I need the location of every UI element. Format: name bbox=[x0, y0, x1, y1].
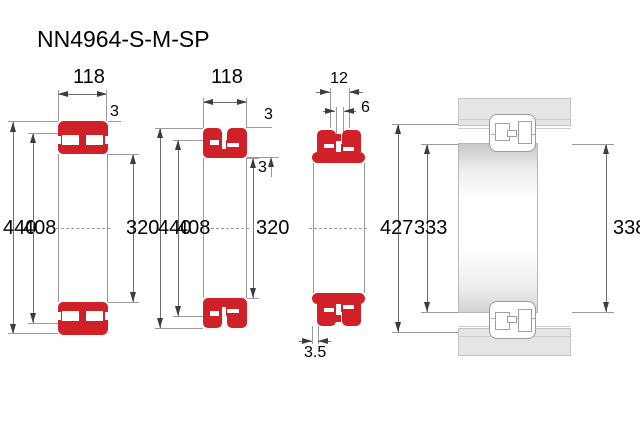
bearing-section-bottom bbox=[58, 302, 108, 335]
arrowhead bbox=[603, 144, 609, 154]
dim-label-width: 118 bbox=[209, 67, 245, 87]
bearing-section-bottom bbox=[203, 298, 247, 328]
extension-line bbox=[8, 121, 58, 122]
dim-label-width: 118 bbox=[71, 67, 107, 87]
dim-label-bore: 320 bbox=[126, 218, 159, 238]
outer-ring-lip bbox=[227, 316, 247, 328]
arrowhead bbox=[175, 140, 181, 150]
cage-slot bbox=[105, 312, 108, 320]
cage-bar bbox=[507, 316, 517, 323]
outer-ring bbox=[58, 121, 108, 133]
roller-cartridge-top bbox=[489, 114, 536, 152]
arrowhead bbox=[320, 89, 330, 95]
extension-line bbox=[155, 328, 203, 329]
extension-line bbox=[572, 144, 614, 145]
extension-line bbox=[312, 326, 313, 344]
roller bbox=[324, 144, 334, 148]
inner-ring bbox=[203, 298, 247, 307]
extension-line bbox=[58, 90, 59, 121]
roller bbox=[62, 135, 79, 145]
dim-label-bore: 320 bbox=[256, 218, 289, 238]
outer-ring-lip bbox=[203, 316, 222, 328]
inner-ring bbox=[203, 149, 247, 158]
arrowhead bbox=[30, 313, 36, 323]
inner-ring bbox=[312, 152, 365, 163]
extension-line bbox=[28, 323, 58, 324]
inner-ring-body bbox=[458, 143, 538, 313]
dim-line-bore bbox=[253, 158, 254, 298]
outer-ring-lip bbox=[203, 128, 222, 140]
arrowhead bbox=[325, 108, 335, 114]
inner-ring bbox=[58, 146, 108, 154]
outer-ring-lip bbox=[342, 312, 361, 326]
dim-label-id: 338 bbox=[613, 218, 640, 238]
dim-label-recess: 408 bbox=[177, 218, 210, 238]
roller bbox=[343, 147, 354, 151]
roller bbox=[210, 140, 219, 145]
bearing-section-top bbox=[58, 121, 108, 154]
outer-ring bbox=[58, 323, 108, 335]
oil-hole bbox=[336, 315, 341, 322]
arrowhead bbox=[424, 302, 430, 312]
extension-line bbox=[247, 298, 259, 299]
extension-line bbox=[392, 332, 458, 333]
cage-slot bbox=[336, 304, 341, 312]
extension-line bbox=[106, 90, 107, 121]
inner-ring bbox=[312, 293, 365, 304]
roller-outline bbox=[518, 121, 532, 144]
dim-label-recess: 408 bbox=[23, 218, 56, 238]
arrowhead bbox=[395, 322, 401, 332]
bearing-drawing-canvas: NN4964-S-M-SP 118 bbox=[0, 0, 640, 440]
arrowhead bbox=[175, 306, 181, 316]
bearing-section-top bbox=[312, 130, 365, 163]
extension-line bbox=[155, 128, 203, 129]
dim-label-od: 427 bbox=[380, 218, 413, 238]
cage-slot bbox=[336, 144, 341, 152]
arrowhead bbox=[130, 154, 136, 164]
extension-line bbox=[108, 302, 139, 303]
roller bbox=[86, 311, 103, 321]
leader-line bbox=[247, 157, 279, 158]
oil-hole bbox=[336, 134, 341, 141]
cage-slot bbox=[222, 140, 226, 149]
outer-ring-lip bbox=[317, 130, 336, 144]
arrowhead bbox=[157, 318, 163, 328]
arrowhead bbox=[58, 91, 68, 97]
arrowhead bbox=[203, 99, 213, 105]
arrowhead bbox=[250, 158, 256, 168]
outer-ring-lip bbox=[227, 128, 247, 140]
bearing-section-bottom bbox=[312, 293, 365, 326]
arrowhead bbox=[344, 108, 354, 114]
drawing-title: NN4964-S-M-SP bbox=[37, 28, 210, 51]
inner-ring bbox=[58, 302, 108, 310]
extension-line bbox=[572, 312, 614, 313]
roller bbox=[227, 309, 239, 313]
cage-bar bbox=[507, 130, 517, 137]
roller bbox=[62, 311, 79, 321]
leader-line bbox=[108, 121, 121, 122]
arrowhead bbox=[424, 144, 430, 154]
dim-label-rib: 3 bbox=[110, 104, 119, 120]
roller bbox=[324, 308, 334, 312]
dim-label-bore: 333 bbox=[414, 218, 447, 238]
extension-line bbox=[203, 98, 204, 128]
dim-label-groove: 12 bbox=[327, 71, 351, 87]
leader-line bbox=[247, 127, 272, 128]
arrowhead bbox=[10, 122, 16, 132]
extension-line bbox=[173, 316, 203, 317]
arrowhead bbox=[603, 302, 609, 312]
extension-line bbox=[246, 98, 247, 128]
outer-ring-lip bbox=[342, 130, 361, 144]
dim-label-hole: 6 bbox=[361, 100, 370, 116]
arrowhead bbox=[250, 288, 256, 298]
cage-slot bbox=[58, 312, 61, 320]
outer-ring-lip bbox=[317, 312, 336, 326]
roller bbox=[343, 305, 354, 309]
dim-label-step: 3.5 bbox=[304, 345, 326, 361]
roller-outline bbox=[518, 309, 532, 332]
extension-line bbox=[8, 333, 58, 334]
arrowhead bbox=[395, 124, 401, 134]
dim-label-rib-top: 3 bbox=[264, 107, 273, 123]
extension-line bbox=[28, 133, 58, 134]
arrowhead bbox=[349, 89, 359, 95]
arrowhead bbox=[30, 133, 36, 143]
dim-line-id bbox=[606, 144, 607, 312]
dim-label-rib-bottom: 3 bbox=[258, 160, 267, 176]
roller bbox=[86, 135, 103, 145]
roller bbox=[227, 143, 239, 147]
roller-cartridge-bottom bbox=[489, 301, 536, 339]
cage-slot bbox=[222, 307, 226, 316]
arrowhead bbox=[268, 157, 274, 167]
cage-slot bbox=[58, 136, 61, 144]
bearing-section-top bbox=[203, 128, 247, 158]
roller bbox=[210, 311, 219, 316]
extension-line bbox=[108, 154, 139, 155]
cage-slot bbox=[105, 136, 108, 144]
arrowhead bbox=[130, 292, 136, 302]
centerline bbox=[309, 228, 367, 229]
extension-line bbox=[392, 124, 458, 125]
arrowhead bbox=[157, 128, 163, 138]
extension-line bbox=[173, 140, 203, 141]
centerline bbox=[56, 228, 110, 229]
